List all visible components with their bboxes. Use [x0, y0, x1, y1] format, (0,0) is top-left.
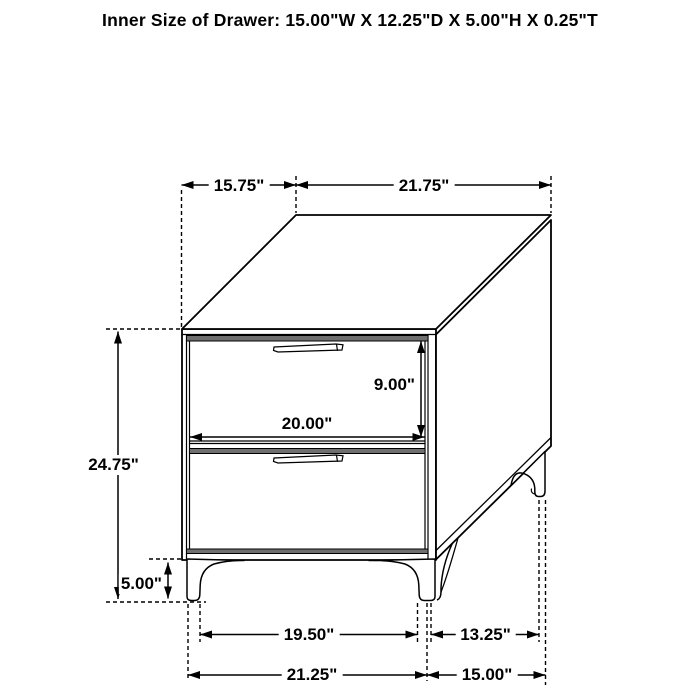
dimension-diagram-page: Inner Size of Drawer: 15.00"W X 12.25"D … [0, 0, 700, 700]
label-side-gap: 13.25" [455, 625, 516, 645]
label-top-width: 21.75" [394, 176, 455, 196]
label-base-width: 21.25" [282, 665, 343, 685]
mid-shadow-gap [190, 449, 426, 454]
label-feet-span: 19.50" [279, 625, 340, 645]
bottom-shadow-gap [187, 549, 429, 554]
cabinet-front-face [182, 329, 436, 560]
nightstand-line-drawing [0, 0, 700, 700]
label-top-depth: 15.75" [209, 176, 270, 196]
front-left-leg [187, 559, 244, 601]
label-drawer-height: 9.00" [372, 375, 417, 395]
top-shadow-gap [187, 336, 429, 342]
label-base-depth: 15.00" [457, 665, 518, 685]
front-right-leg [369, 559, 435, 601]
label-leg-height: 5.00" [119, 574, 164, 594]
label-overall-height: 24.75" [83, 455, 144, 475]
cabinet [182, 215, 551, 560]
label-drawer-width: 20.00" [277, 414, 338, 434]
